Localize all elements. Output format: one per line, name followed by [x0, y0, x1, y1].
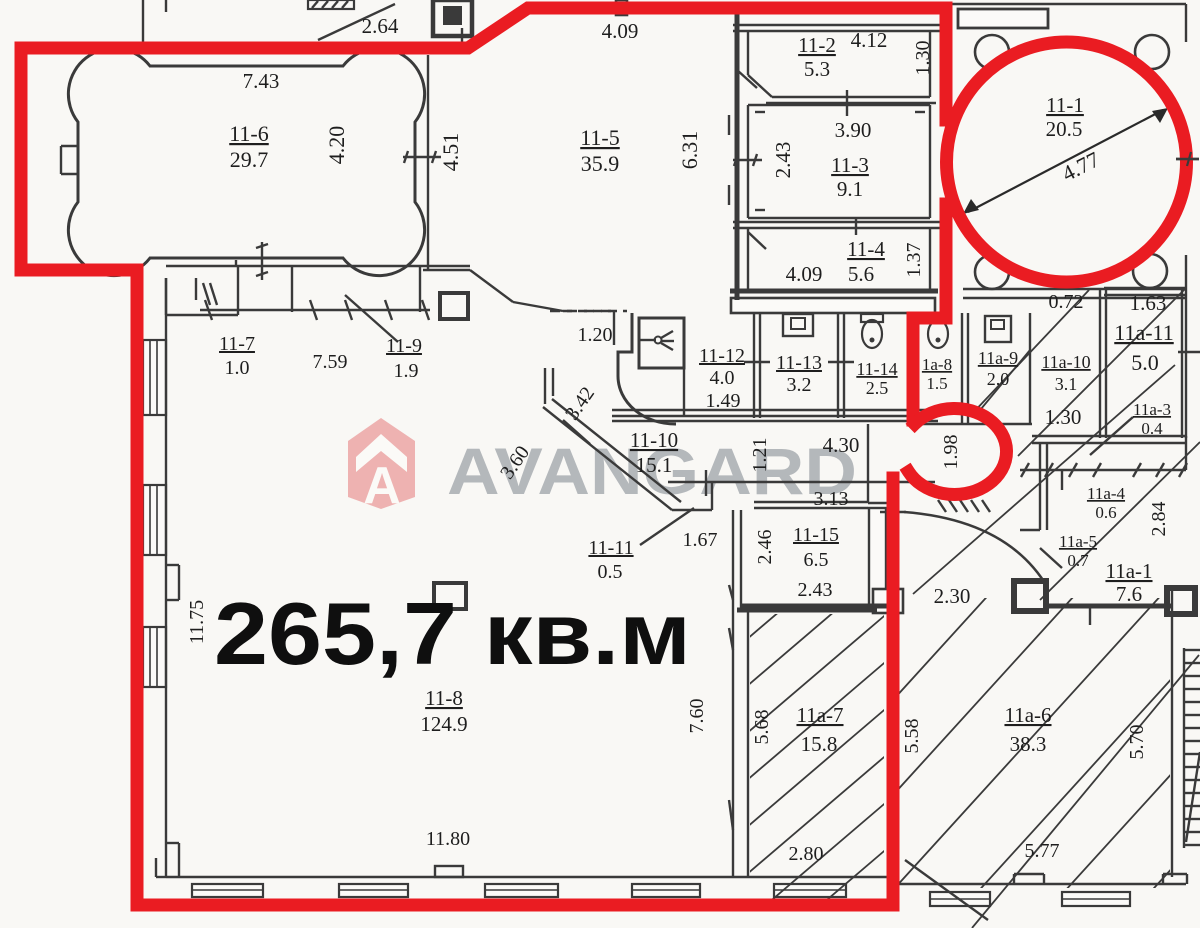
svg-text:11-12: 11-12: [699, 345, 745, 367]
svg-text:35.9: 35.9: [581, 151, 620, 176]
svg-text:11а-1: 11а-1: [1105, 559, 1152, 583]
svg-text:11а-5: 11а-5: [1059, 532, 1097, 551]
svg-text:3.1: 3.1: [1055, 374, 1078, 394]
svg-text:0.5: 0.5: [598, 561, 623, 583]
svg-text:7.43: 7.43: [243, 69, 280, 93]
svg-text:4.09: 4.09: [786, 262, 823, 286]
svg-text:7.6: 7.6: [1116, 582, 1142, 606]
svg-text:2.43: 2.43: [798, 579, 833, 601]
svg-text:A: A: [363, 457, 401, 515]
svg-text:11-11: 11-11: [588, 537, 633, 559]
svg-text:4.51: 4.51: [438, 133, 463, 172]
svg-text:1.20: 1.20: [578, 324, 613, 346]
svg-text:1.9: 1.9: [394, 360, 419, 382]
svg-text:11-8: 11-8: [425, 686, 463, 710]
svg-text:11а-10: 11а-10: [1041, 352, 1090, 372]
svg-text:11-3: 11-3: [831, 153, 869, 177]
svg-text:2.64: 2.64: [362, 14, 399, 38]
svg-text:11-2: 11-2: [798, 33, 836, 57]
svg-text:7.59: 7.59: [313, 351, 348, 373]
svg-text:1.21: 1.21: [749, 438, 771, 473]
svg-text:11а-3: 11а-3: [1133, 400, 1171, 419]
svg-text:4.12: 4.12: [851, 28, 888, 52]
svg-text:5.70: 5.70: [1126, 725, 1148, 760]
svg-text:1.67: 1.67: [683, 529, 718, 551]
svg-text:1.30: 1.30: [1045, 405, 1082, 429]
svg-text:29.7: 29.7: [230, 147, 269, 172]
svg-text:0.72: 0.72: [1049, 291, 1084, 313]
svg-text:2.80: 2.80: [789, 843, 824, 865]
svg-text:38.3: 38.3: [1010, 732, 1047, 756]
svg-text:5.77: 5.77: [1025, 840, 1060, 862]
svg-text:2.46: 2.46: [754, 530, 776, 565]
svg-text:3.13: 3.13: [814, 488, 849, 510]
svg-text:7.60: 7.60: [686, 699, 708, 734]
svg-text:11-14: 11-14: [856, 359, 897, 379]
svg-text:0.6: 0.6: [1095, 503, 1116, 522]
svg-text:5.6: 5.6: [848, 262, 874, 286]
svg-text:1.5: 1.5: [926, 374, 947, 393]
svg-text:0.7: 0.7: [1067, 551, 1089, 570]
svg-text:11-9: 11-9: [386, 335, 422, 357]
svg-text:11-4: 11-4: [847, 237, 885, 261]
svg-text:4.30: 4.30: [823, 433, 860, 457]
svg-text:0.4: 0.4: [1141, 419, 1163, 438]
svg-text:1.98: 1.98: [940, 435, 962, 470]
svg-text:2.0: 2.0: [987, 369, 1010, 389]
svg-text:20.5: 20.5: [1046, 117, 1083, 141]
svg-text:11а-6: 11а-6: [1004, 703, 1051, 727]
svg-text:5.58: 5.58: [901, 719, 923, 754]
svg-text:11a-11: 11a-11: [1114, 320, 1173, 345]
svg-text:2.30: 2.30: [934, 584, 971, 608]
svg-text:15.8: 15.8: [801, 732, 838, 756]
svg-text:5.3: 5.3: [804, 57, 830, 81]
svg-text:1.63: 1.63: [1130, 291, 1167, 315]
svg-text:1.37: 1.37: [903, 243, 925, 278]
svg-text:9.1: 9.1: [837, 177, 863, 201]
svg-text:4.0: 4.0: [710, 367, 735, 389]
svg-text:6.31: 6.31: [677, 131, 702, 170]
svg-text:3.90: 3.90: [835, 118, 872, 142]
svg-text:2.5: 2.5: [866, 378, 889, 398]
svg-text:11а-7: 11а-7: [796, 703, 843, 727]
svg-text:11-15: 11-15: [793, 524, 839, 546]
svg-text:2.84: 2.84: [1148, 502, 1170, 537]
svg-text:11.75: 11.75: [186, 600, 208, 644]
svg-text:11а-9: 11а-9: [978, 348, 1018, 368]
svg-text:11-13: 11-13: [776, 352, 822, 374]
svg-text:15.1: 15.1: [636, 453, 673, 477]
svg-text:11-7: 11-7: [219, 333, 255, 355]
svg-text:6.5: 6.5: [804, 549, 829, 571]
svg-text:5.0: 5.0: [1131, 350, 1159, 375]
svg-text:11-1: 11-1: [1046, 93, 1084, 117]
svg-text:1.49: 1.49: [706, 390, 741, 412]
svg-text:11-6: 11-6: [229, 121, 269, 146]
svg-text:265,7 кв.м: 265,7 кв.м: [214, 584, 691, 683]
svg-text:1а-8: 1а-8: [922, 355, 952, 374]
svg-text:11-5: 11-5: [580, 125, 620, 150]
svg-text:4.09: 4.09: [602, 19, 639, 43]
svg-text:2.43: 2.43: [771, 142, 795, 179]
svg-text:1.0: 1.0: [225, 357, 250, 379]
svg-text:5.68: 5.68: [751, 710, 773, 745]
svg-text:1.30: 1.30: [912, 41, 934, 76]
svg-text:124.9: 124.9: [420, 712, 467, 736]
svg-text:11.80: 11.80: [426, 828, 470, 850]
svg-text:11-10: 11-10: [630, 428, 678, 452]
svg-text:3.2: 3.2: [787, 374, 812, 396]
svg-text:11а-4: 11а-4: [1087, 484, 1126, 503]
svg-text:4.20: 4.20: [324, 126, 349, 165]
